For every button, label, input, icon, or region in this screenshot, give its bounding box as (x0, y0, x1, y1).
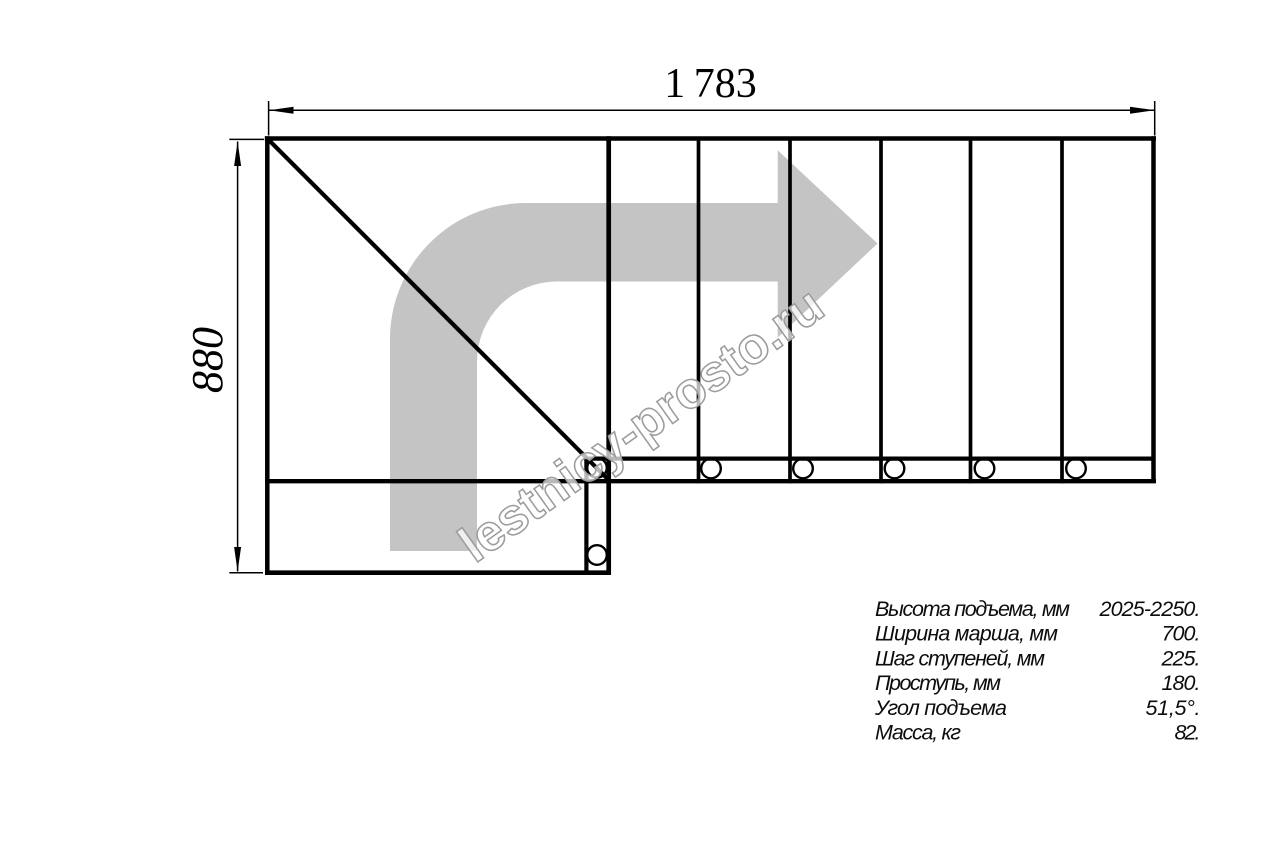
svg-text:lestnicy-prosto.ru: lestnicy-prosto.ru (448, 276, 833, 573)
svg-text:2025-2250.: 2025-2250. (1099, 597, 1201, 621)
svg-text:700.: 700. (1162, 622, 1201, 646)
svg-text:225.: 225. (1161, 646, 1201, 670)
svg-text:Ширина марша, мм: Ширина марша, мм (875, 622, 1058, 646)
svg-text:Проступь, мм: Проступь, мм (875, 671, 1001, 695)
svg-text:Высота подъема, мм: Высота подъема, мм (875, 597, 1070, 621)
svg-text:1 783: 1 783 (664, 61, 756, 107)
svg-text:82.: 82. (1175, 721, 1201, 745)
svg-text:51,5°.: 51,5°. (1146, 696, 1201, 720)
svg-text:880: 880 (183, 327, 232, 393)
svg-text:Шаг ступеней, мм: Шаг ступеней, мм (875, 646, 1045, 670)
svg-text:Угол подъема: Угол подъема (874, 696, 1007, 720)
svg-text:180.: 180. (1162, 671, 1201, 695)
svg-text:Масса, кг: Масса, кг (875, 721, 961, 745)
